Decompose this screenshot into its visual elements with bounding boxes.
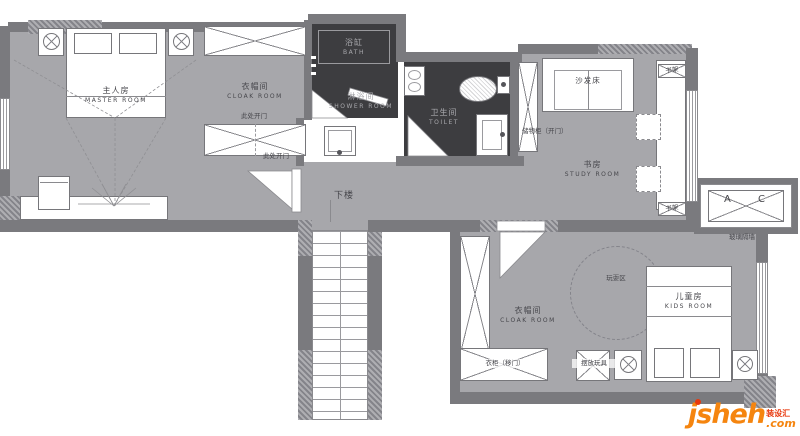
watermark-dot-icon bbox=[695, 399, 701, 405]
wall-left-upper bbox=[0, 26, 10, 98]
wall-hatch-stairs-left-bottom bbox=[298, 350, 312, 420]
lamp-icon bbox=[737, 356, 753, 372]
floor-corridor bbox=[200, 160, 525, 222]
stool-line bbox=[40, 182, 68, 183]
label-study-room-zh: 书房 bbox=[545, 160, 640, 171]
floor-plan: 主人房 MASTER ROOM 衣帽间 CLOAK ROOM 此处开门 此处开门… bbox=[0, 0, 800, 436]
lamp-icon bbox=[43, 33, 60, 50]
window-study-right bbox=[686, 90, 698, 202]
label-play-area: 玩耍区 bbox=[586, 274, 646, 283]
wall-hatch-stairs-right-bottom bbox=[368, 350, 382, 420]
wall-hatch-stairs-right-top bbox=[368, 232, 382, 256]
toilet-tank-dot bbox=[501, 82, 506, 87]
wall-kids-left bbox=[450, 220, 460, 404]
wall-hatch-kids-top bbox=[480, 220, 558, 232]
label-sliding-wardrobe: 衣柜（移门） bbox=[468, 359, 542, 368]
shower-fixture-icon bbox=[311, 72, 316, 75]
wall-hatch-stairs-left-top bbox=[298, 220, 312, 256]
wall-hatch-bottom-left bbox=[0, 196, 20, 222]
label-kids-cloak-en: CLOAK ROOM bbox=[482, 317, 574, 325]
wall-toilet-study-divider bbox=[510, 52, 518, 158]
label-ac-c: C bbox=[758, 194, 765, 205]
label-kids-room-en: KIDS ROOM bbox=[646, 303, 732, 311]
wall-hatch-study-top bbox=[598, 44, 692, 54]
wardrobe-cloak-top bbox=[204, 26, 306, 56]
pillow-left bbox=[74, 33, 112, 54]
label-toilet-zh: 卫生间 bbox=[414, 108, 474, 119]
downstairs-leader-line bbox=[330, 200, 331, 222]
wardrobe-kids-left bbox=[460, 236, 490, 352]
sink-icon bbox=[408, 82, 421, 92]
label-glass-partition: 玻璃隔墙 bbox=[712, 233, 772, 242]
wall-master-bottom bbox=[0, 220, 312, 232]
floor-stair-landing bbox=[312, 220, 368, 230]
label-cloak-room-zh: 衣帽间 bbox=[204, 82, 306, 93]
label-toys: 摆放玩具 bbox=[572, 359, 616, 368]
toilet-cabinet-inner bbox=[482, 120, 502, 150]
shower-fixture-icon bbox=[311, 56, 316, 59]
toilet-bowl bbox=[459, 76, 497, 102]
pillow-right bbox=[119, 33, 157, 54]
lamp-icon bbox=[620, 356, 637, 373]
watermark: jsheh装设汇.com bbox=[688, 399, 796, 430]
label-storage-cabinet: 储物柜（开门） bbox=[522, 127, 592, 136]
label-shower-en: SHOWER ROOM bbox=[328, 103, 394, 111]
wall-bath-top bbox=[308, 14, 400, 24]
label-bath-zh: 浴缸 bbox=[318, 38, 390, 49]
label-kids-room-zh: 儿童房 bbox=[646, 292, 732, 303]
label-bath-en: BATH bbox=[318, 49, 390, 57]
label-toilet-en: TOILET bbox=[414, 119, 474, 127]
label-downstairs: 下楼 bbox=[326, 190, 362, 202]
wall-toilet-bottom bbox=[396, 156, 524, 166]
label-kids-cloak: 衣帽间 CLOAK ROOM bbox=[482, 306, 574, 325]
window-master-left bbox=[0, 98, 10, 170]
label-master-room: 主人房 MASTER ROOM bbox=[66, 86, 166, 105]
label-toilet: 卫生间 TOILET bbox=[414, 108, 474, 127]
watermark-tld: .com bbox=[766, 418, 796, 430]
label-bath: 浴缸 BATH bbox=[318, 38, 390, 57]
kids-bed-pillow-line bbox=[646, 286, 732, 287]
wall-toilet-top bbox=[398, 52, 522, 62]
label-study-room: 书房 STUDY ROOM bbox=[545, 160, 640, 179]
label-cloak-room-en: CLOAK ROOM bbox=[204, 93, 306, 101]
label-master-room-en: MASTER ROOM bbox=[66, 97, 166, 105]
label-shower: 淋浴间 SHOWER ROOM bbox=[328, 92, 394, 111]
washbasin-bowl bbox=[328, 130, 352, 152]
label-sofa-bed: 沙发床 bbox=[554, 76, 622, 86]
cabinet-handle-dot bbox=[500, 132, 505, 137]
label-cloak-room: 衣帽间 CLOAK ROOM bbox=[204, 82, 306, 101]
label-open-here-2: 此处开门 bbox=[236, 152, 316, 161]
label-kids-room: 儿童房 KIDS ROOM bbox=[646, 292, 732, 311]
staircase bbox=[312, 230, 368, 420]
storage-cabinet bbox=[518, 62, 538, 152]
label-kids-cloak-zh: 衣帽间 bbox=[482, 306, 574, 317]
faucet-icon bbox=[337, 150, 342, 155]
lamp-icon bbox=[173, 33, 190, 50]
ac-unit bbox=[708, 190, 784, 222]
wall-corridor-bottom bbox=[368, 220, 460, 232]
label-ac-a: A bbox=[724, 194, 731, 205]
sink-icon bbox=[408, 70, 421, 80]
bed-foot-box bbox=[690, 348, 720, 378]
label-master-room-zh: 主人房 bbox=[66, 86, 166, 97]
shower-fixture-icon bbox=[311, 64, 316, 67]
label-open-here-1: 此处开门 bbox=[214, 112, 294, 121]
bed-foot-box bbox=[654, 348, 684, 378]
desk-chair bbox=[636, 114, 661, 140]
label-study-room-en: STUDY ROOM bbox=[545, 171, 640, 179]
label-shower-zh: 淋浴间 bbox=[328, 92, 394, 103]
kids-bed-blanket-line bbox=[646, 316, 732, 317]
